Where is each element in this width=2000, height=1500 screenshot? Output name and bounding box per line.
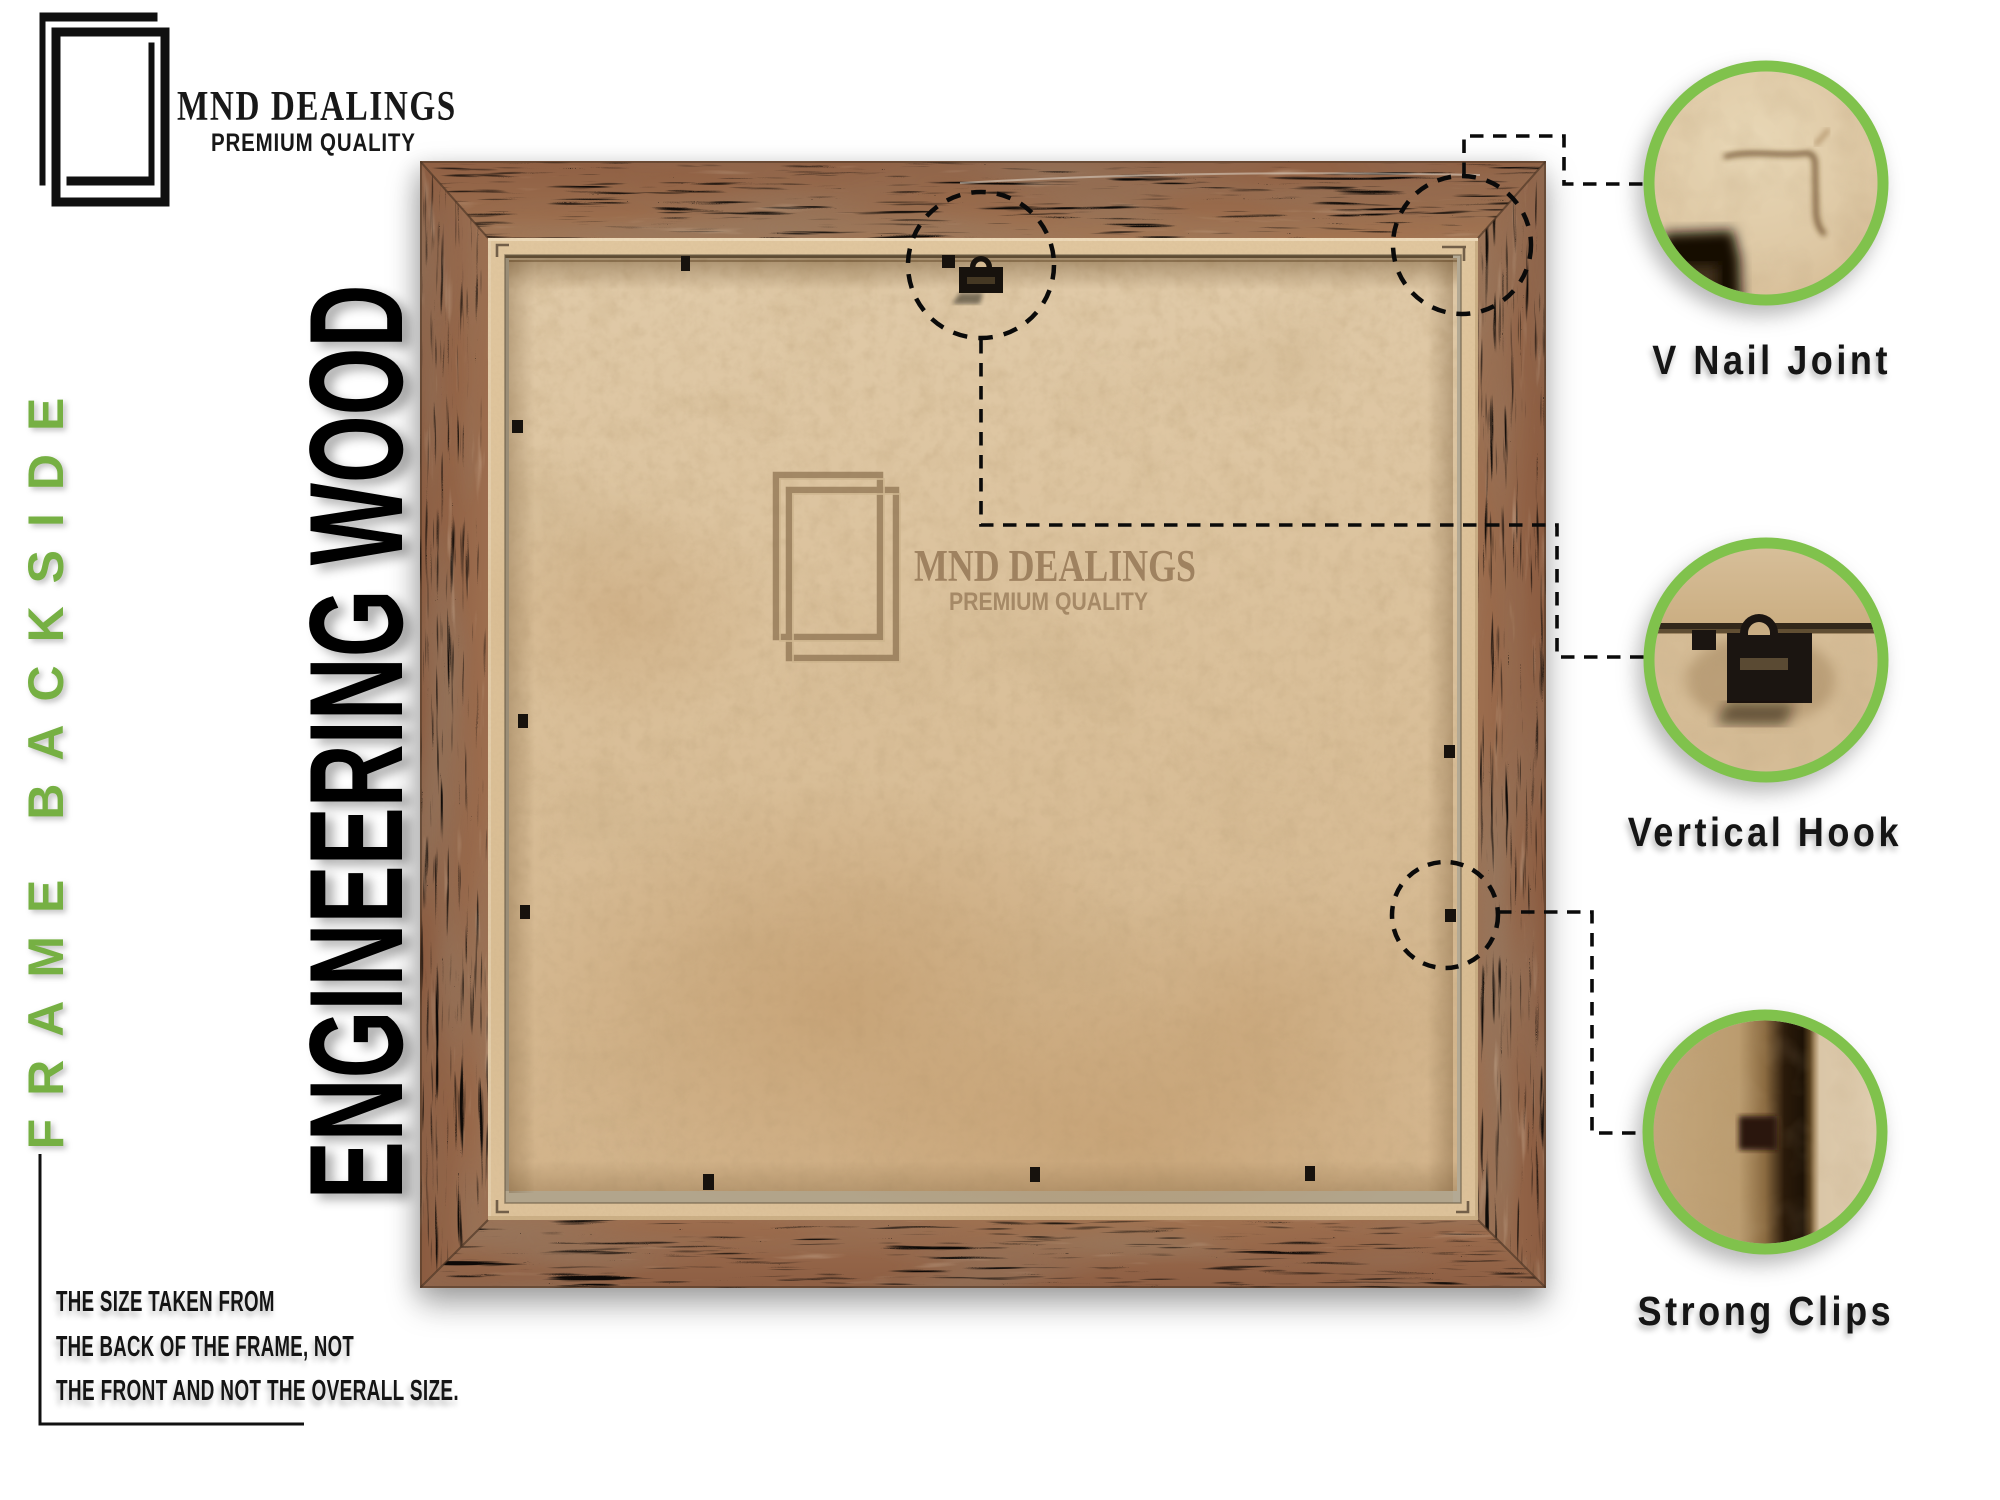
svg-text:MND DEALINGS: MND DEALINGS [914, 541, 1196, 591]
svg-text:PREMIUM QUALITY: PREMIUM QUALITY [949, 588, 1148, 616]
